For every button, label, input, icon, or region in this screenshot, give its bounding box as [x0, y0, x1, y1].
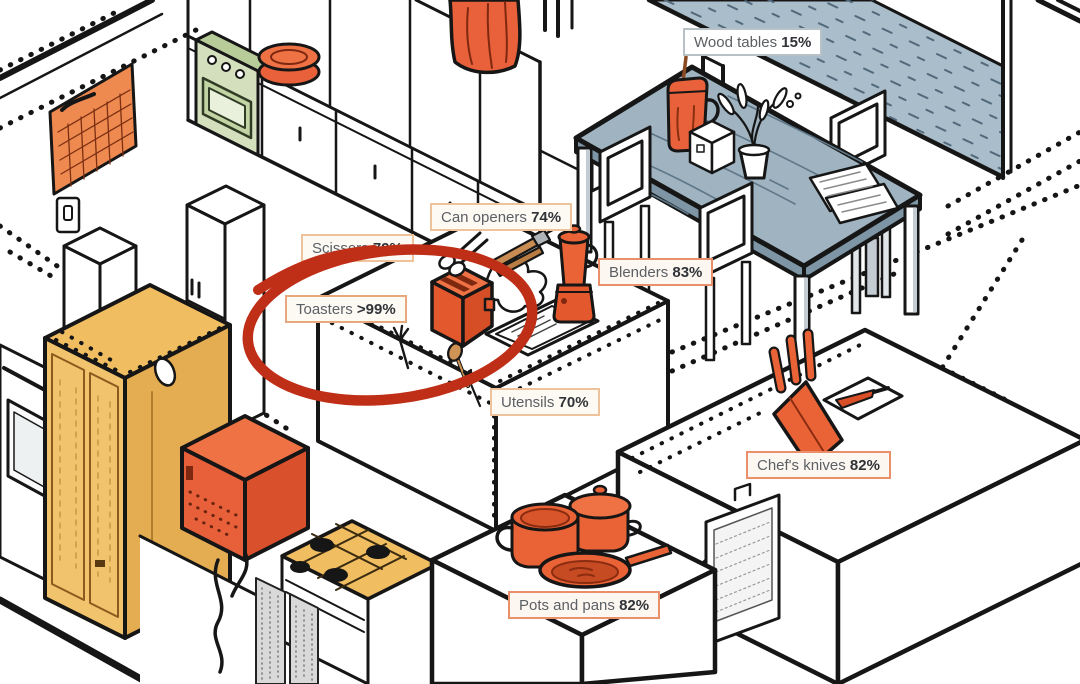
label-wood-tables: Wood tables 15% — [683, 28, 822, 56]
storage-bag — [450, 0, 520, 72]
label-value: 70% — [559, 394, 589, 411]
label-chefs-knives: Chef's knives 82% — [746, 451, 891, 479]
label-text: Utensils — [501, 394, 554, 411]
label-pots-pans: Pots and pans 82% — [508, 591, 660, 619]
label-text: Can openers — [441, 209, 527, 226]
label-text: Blenders — [609, 264, 668, 281]
label-text: Chef's knives — [757, 457, 846, 474]
label-toasters: Toasters >99% — [285, 295, 407, 323]
label-value: 15% — [781, 34, 811, 51]
label-can-openers: Can openers 74% — [430, 203, 572, 231]
label-value: 82% — [850, 457, 880, 474]
light-switch — [57, 198, 79, 232]
orange-dish — [259, 44, 319, 85]
label-scissors: Scissors 79% — [301, 234, 414, 262]
label-value: 82% — [619, 597, 649, 614]
label-value: 79% — [373, 240, 403, 257]
label-utensils: Utensils 70% — [490, 388, 600, 416]
tissue-box — [690, 121, 734, 173]
label-value: 74% — [531, 209, 561, 226]
label-blenders: Blenders 83% — [598, 258, 713, 286]
wall-corner — [545, 0, 572, 36]
label-text: Wood tables — [694, 34, 777, 51]
label-text: Scissors — [312, 240, 369, 257]
kitchen-illustration — [0, 0, 1080, 684]
kitchen-infographic: Wood tables 15% Can openers 74% Scissors… — [0, 0, 1080, 684]
label-value: >99% — [357, 301, 396, 318]
label-text: Pots and pans — [519, 597, 615, 614]
label-value: 83% — [672, 264, 702, 281]
label-text: Toasters — [296, 301, 353, 318]
